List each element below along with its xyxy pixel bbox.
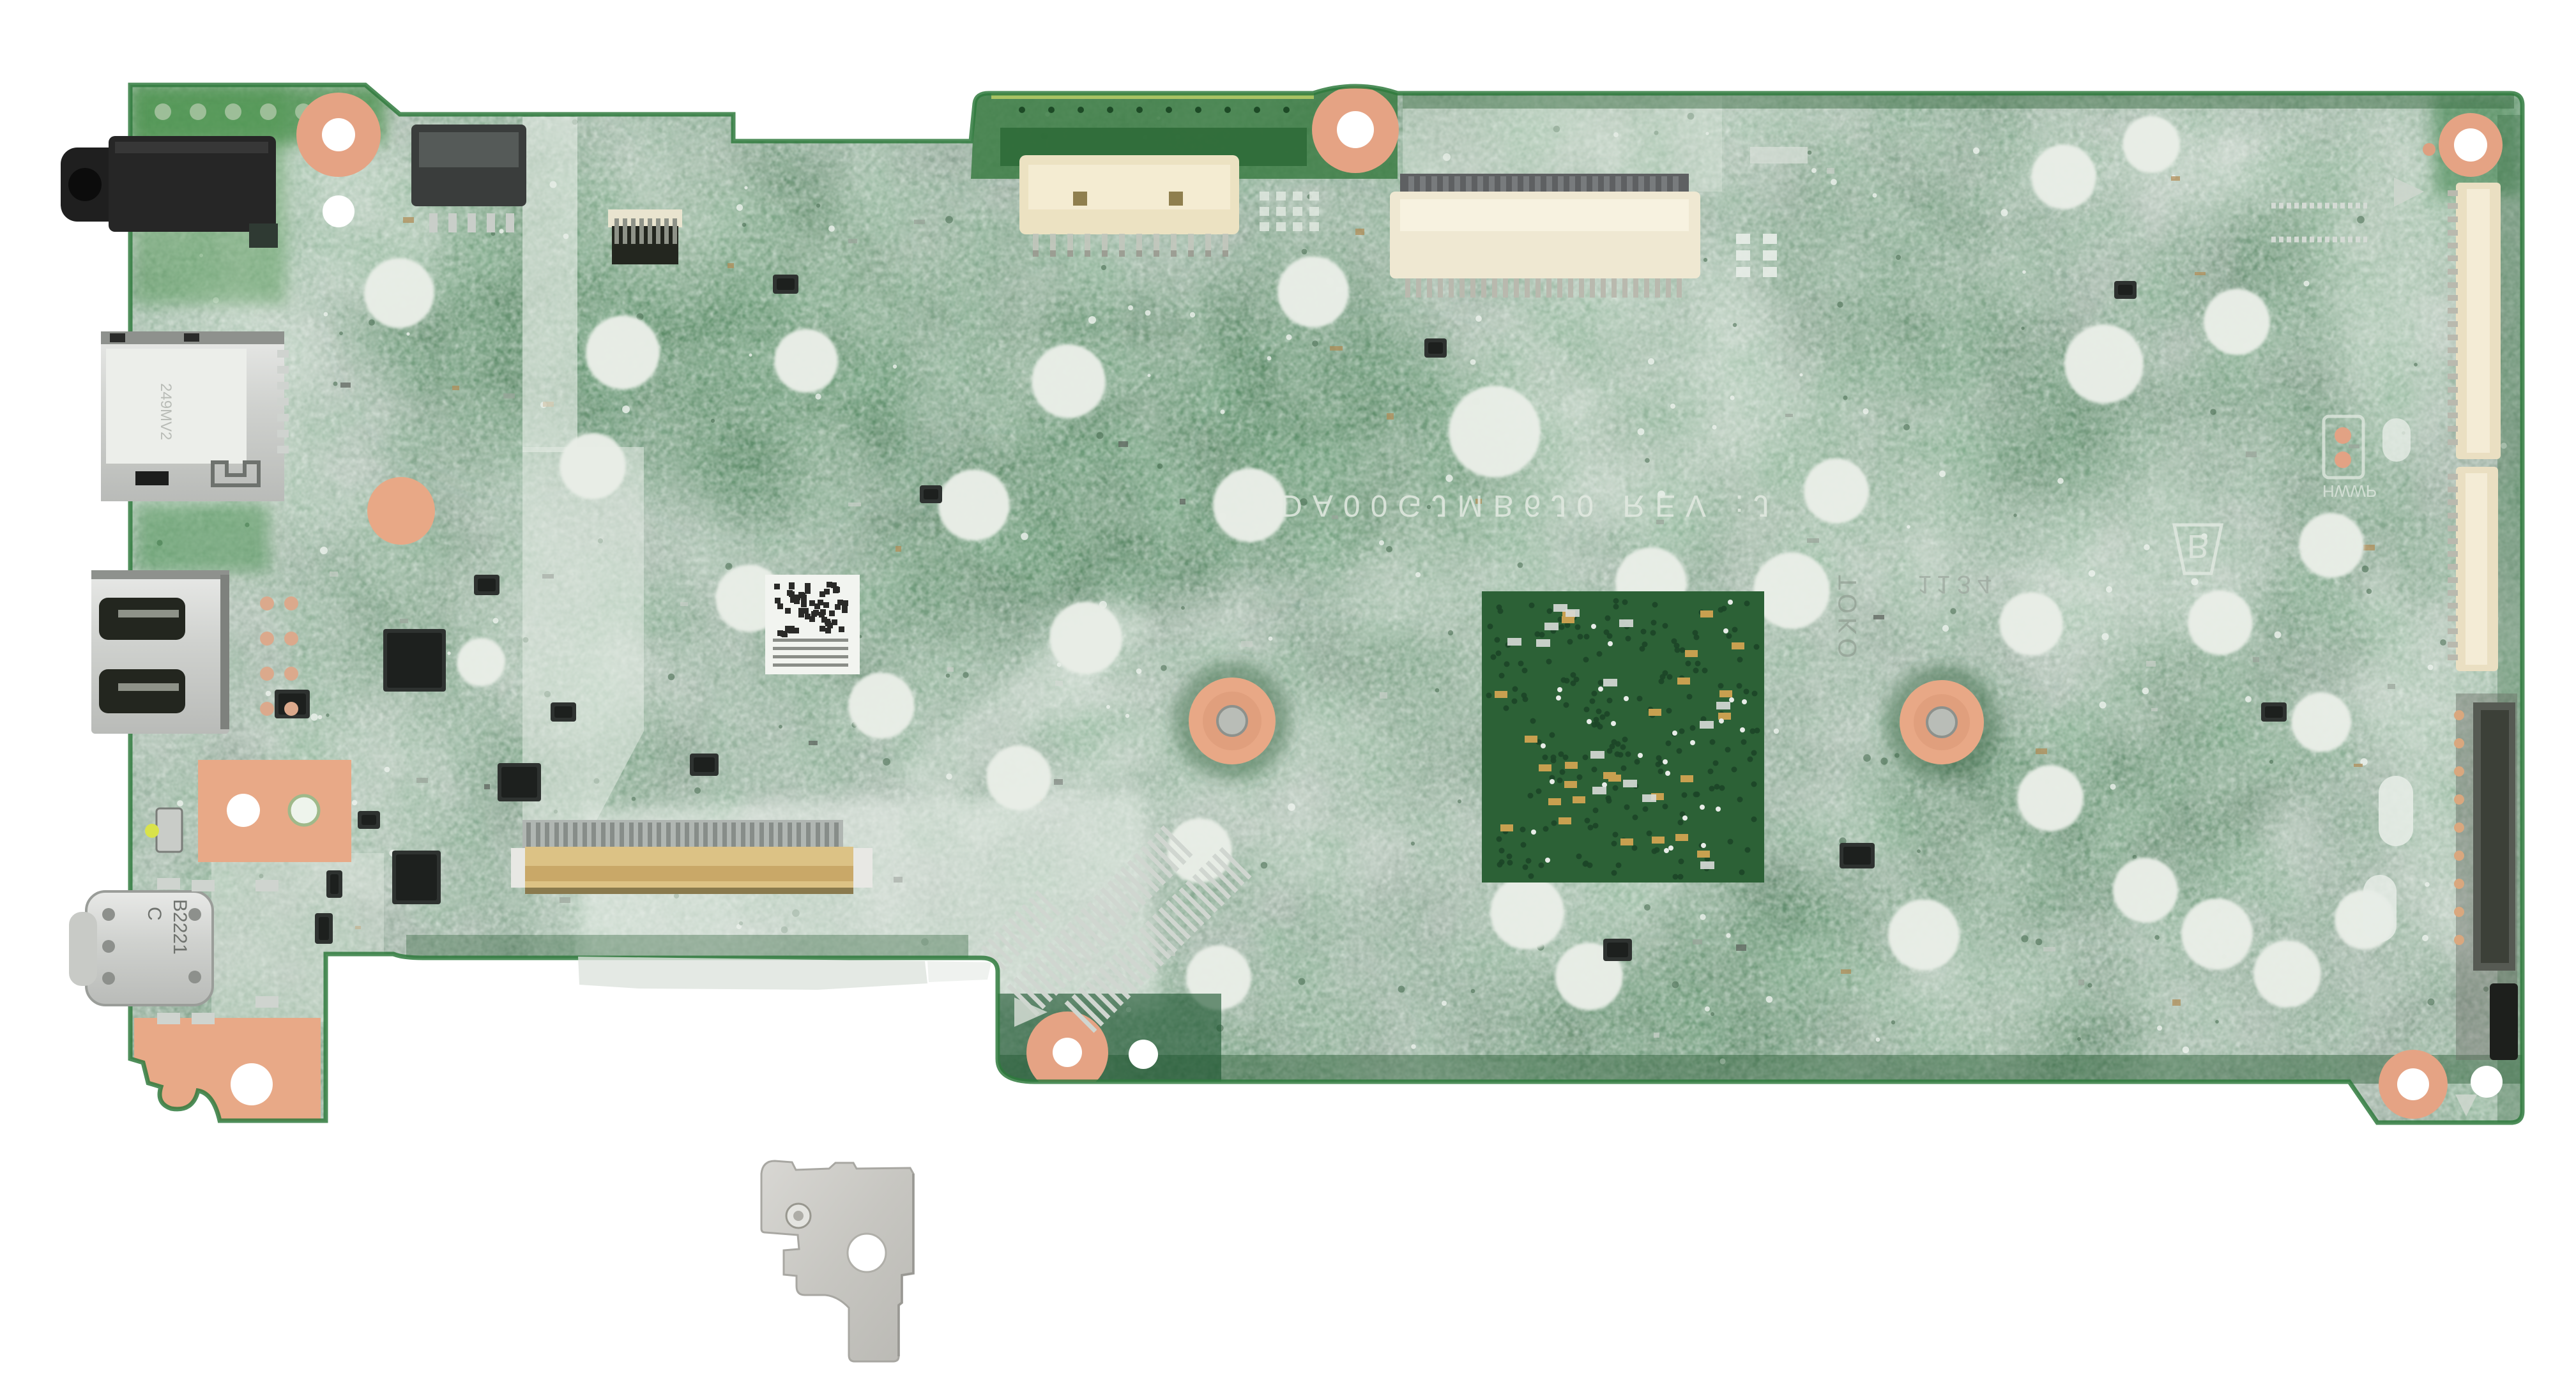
svg-text:TOKO: TOKO (1834, 575, 1862, 662)
svg-text:C: C (144, 907, 165, 921)
svg-text:249MV2: 249MV2 (157, 383, 174, 440)
svg-text:DA00GJMB6J0 REV :J: DA00GJMB6J0 REV :J (1280, 489, 1780, 522)
svg-text:B: B (2187, 527, 2209, 564)
svg-text:HWWP: HWWP (2322, 481, 2377, 501)
svg-text:B2221: B2221 (169, 899, 190, 955)
svg-text:1134: 1134 (1917, 570, 1998, 598)
